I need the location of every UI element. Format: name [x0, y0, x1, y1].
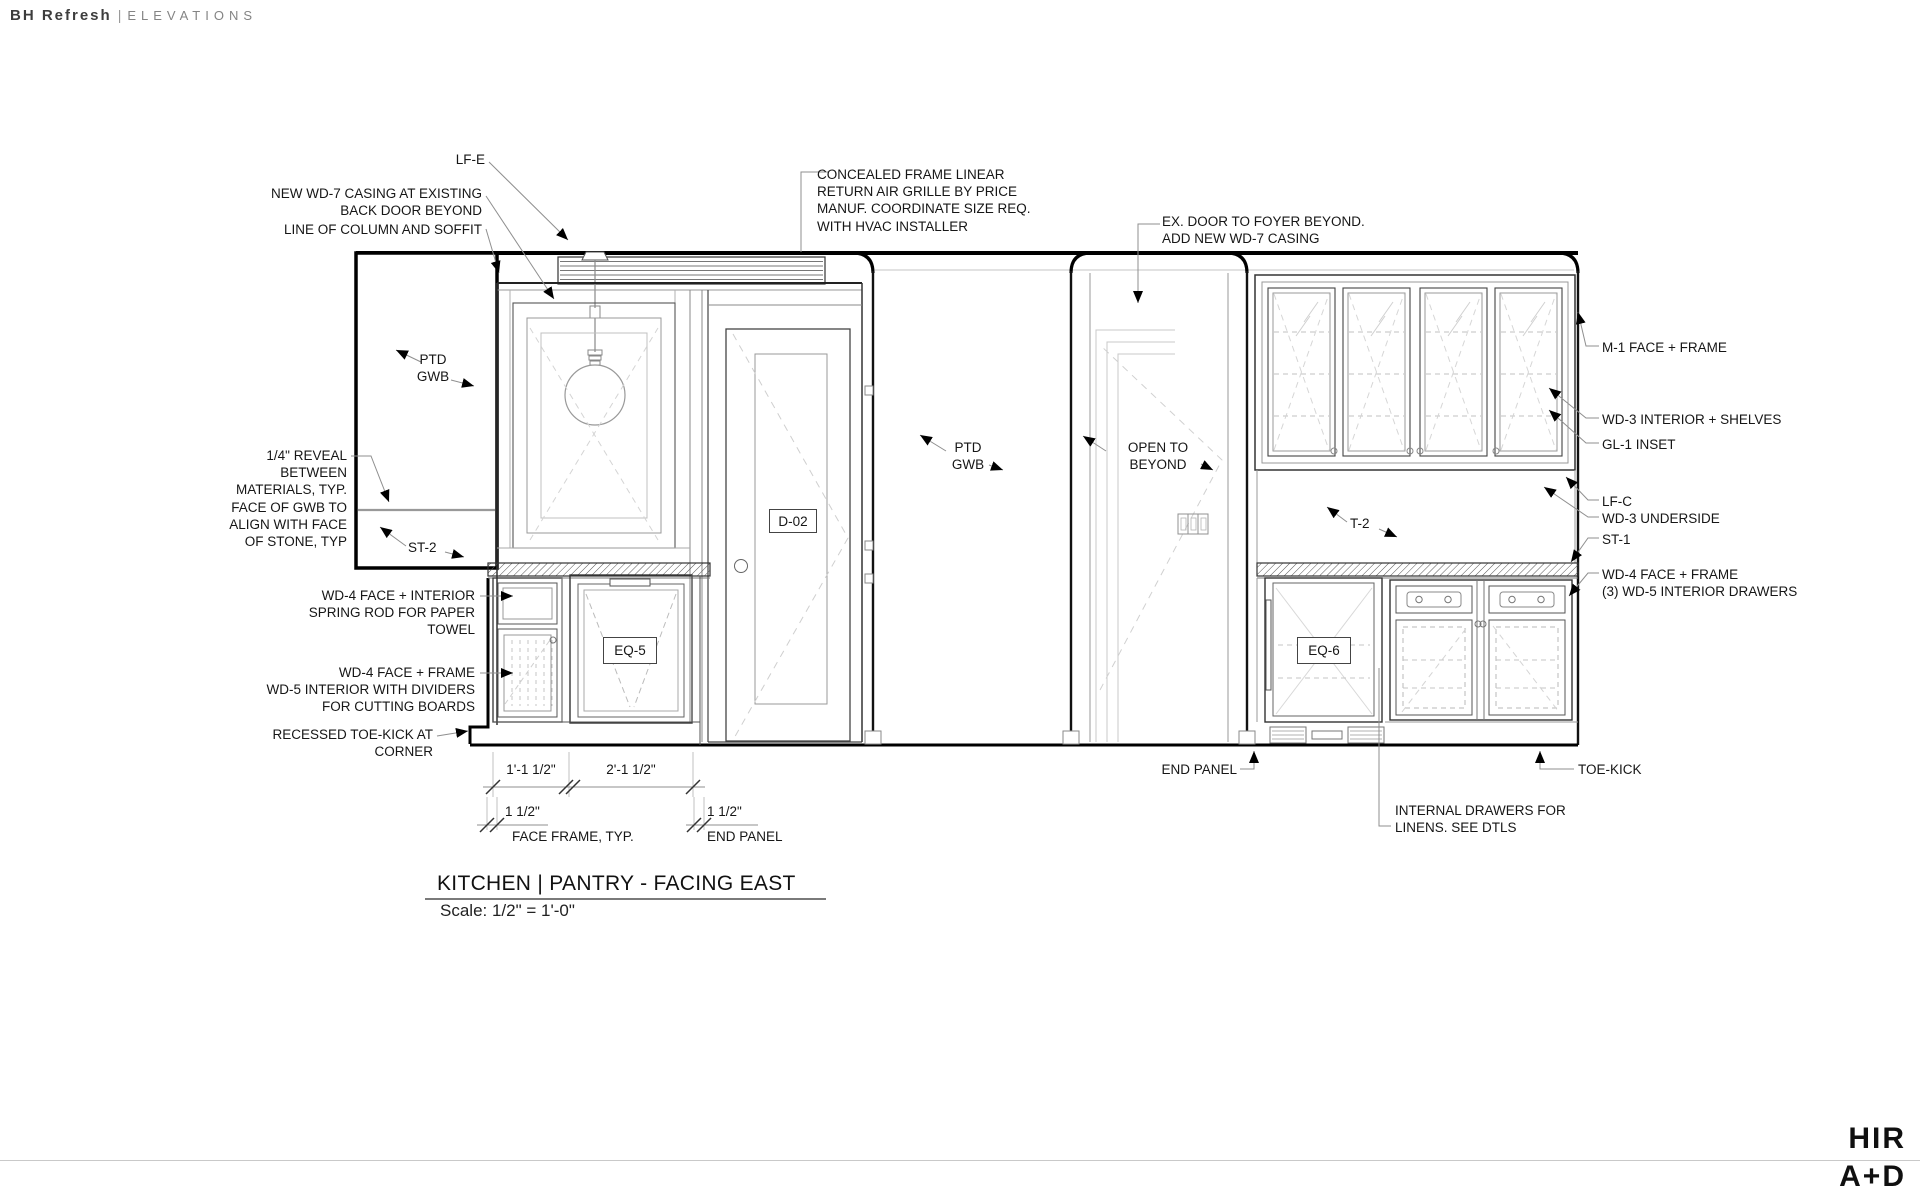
annotation-paper-towel: WD-4 FACE + INTERIOR SPRING ROD FOR PAPE… — [309, 587, 475, 639]
dimension-1: 1'-1 1/2" — [491, 761, 571, 778]
annotation-wd7-casing: NEW WD-7 CASING AT EXISTING BACK DOOR BE… — [271, 185, 482, 219]
upper-cabinets-right — [1255, 275, 1575, 563]
base-cabinets-left — [493, 575, 700, 745]
countertop-left — [488, 563, 710, 578]
annotation-ptd-gwb-left: PTD GWB — [397, 351, 469, 385]
annotation-st2: ST-2 — [408, 539, 437, 556]
outlet-symbol — [1178, 514, 1208, 534]
appliance-tag-eq5: EQ-5 — [603, 637, 657, 664]
annotation-gl1: GL-1 INSET — [1602, 436, 1676, 453]
annotation-open-beyond: OPEN TO BEYOND — [1110, 439, 1206, 473]
annotation-lf-e: LF-E — [456, 151, 485, 168]
annotation-cutting-boards: WD-4 FACE + FRAME WD-5 INTERIOR WITH DIV… — [267, 664, 476, 716]
appliance-tag-eq6: EQ-6 — [1297, 637, 1351, 664]
annotation-ex-door: EX. DOOR TO FOYER BEYOND. ADD NEW WD-7 C… — [1162, 213, 1365, 247]
drawer-bay — [1396, 586, 1472, 715]
annotation-t2: T-2 — [1350, 515, 1370, 532]
firm-logo-line1: HIR — [1848, 1122, 1906, 1156]
annotation-column-soffit: LINE OF COLUMN AND SOFFIT — [284, 221, 482, 238]
footer-rule — [0, 1160, 1920, 1161]
annotation-ptd-gwb-center: PTD GWB — [932, 439, 1004, 473]
drawing-scale: Scale: 1/2" = 1'-0" — [440, 901, 575, 921]
annotation-wd4-drawers: WD-4 FACE + FRAME (3) WD-5 INTERIOR DRAW… — [1602, 566, 1797, 600]
foyer-opening — [1090, 273, 1228, 742]
annotation-end-panel-left: END PANEL — [707, 828, 783, 845]
door-tag-d02: D-02 — [769, 509, 817, 533]
dimension-2: 2'-1 1/2" — [591, 761, 671, 778]
dimension-4: 1 1/2" — [707, 803, 742, 820]
annotation-wd3-shelves: WD-3 INTERIOR + SHELVES — [1602, 411, 1781, 428]
annotation-internal-drawers: INTERNAL DRAWERS FOR LINENS. SEE DTLS — [1395, 802, 1566, 836]
annotation-end-panel-right: END PANEL — [1161, 761, 1237, 778]
annotation-wd3-underside: WD-3 UNDERSIDE — [1602, 510, 1720, 527]
annotation-m1: M-1 FACE + FRAME — [1602, 339, 1727, 356]
dimension-3: 1 1/2" — [505, 803, 540, 820]
annotation-air-grille: CONCEALED FRAME LINEAR RETURN AIR GRILLE… — [817, 166, 1031, 235]
annotation-lfc: LF-C — [1602, 493, 1632, 510]
drawing-title: KITCHEN | PANTRY - FACING EAST — [437, 872, 796, 896]
countertop-right — [1257, 563, 1578, 578]
elevation-sheet: BH Refresh|ELEVATIONS — [0, 0, 1920, 1197]
firm-logo-line2: A+D — [1839, 1160, 1906, 1194]
annotation-recessed-toekick: RECESSED TOE-KICK AT CORNER — [272, 726, 433, 760]
annotation-toe-kick: TOE-KICK — [1578, 761, 1642, 778]
annotation-st1: ST-1 — [1602, 531, 1631, 548]
leader-lines — [351, 162, 1599, 826]
annotation-reveal: 1/4" REVEAL BETWEEN MATERIALS, TYP. FACE… — [229, 447, 347, 550]
drawer-bay — [1489, 586, 1565, 715]
annotation-face-frame: FACE FRAME, TYP. — [512, 828, 634, 845]
linear-air-grille — [558, 257, 825, 284]
